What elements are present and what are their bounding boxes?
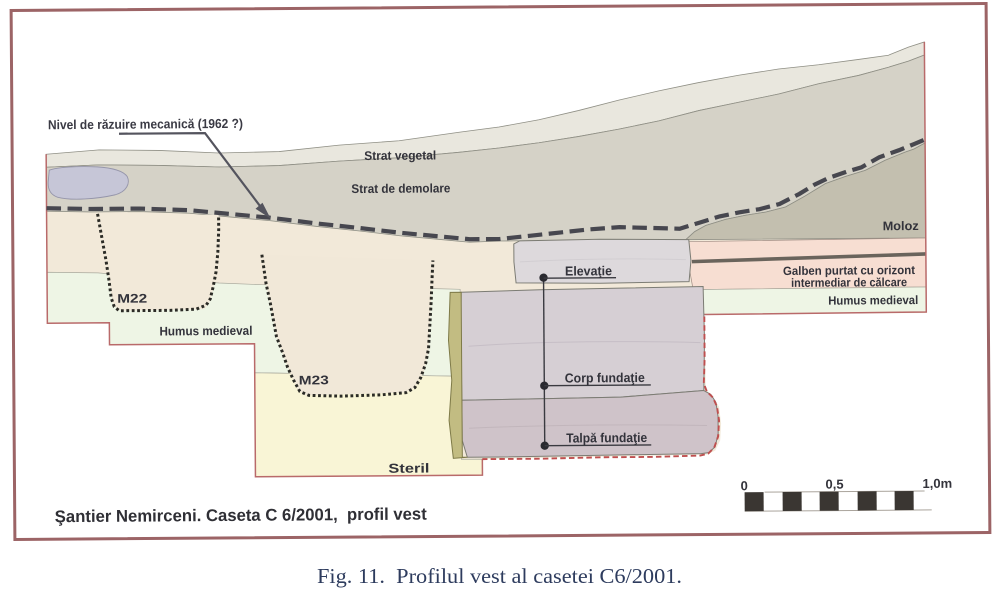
svg-text:Elevaţie: Elevaţie <box>565 263 612 278</box>
svg-text:0: 0 <box>740 478 747 493</box>
svg-text:Strat vegetal: Strat vegetal <box>364 148 436 163</box>
svg-text:Steril: Steril <box>388 461 429 476</box>
svg-text:Moloz: Moloz <box>883 219 919 233</box>
svg-text:M22: M22 <box>117 292 147 306</box>
svg-text:Şantier Nemirceni. Caseta C 6/: Şantier Nemirceni. Caseta C 6/2001, prof… <box>55 505 427 527</box>
svg-text:Strat de demolare: Strat de demolare <box>351 181 450 196</box>
svg-text:intermediar de călcare: intermediar de călcare <box>791 275 907 290</box>
svg-text:Humus medieval: Humus medieval <box>159 324 252 339</box>
svg-text:Humus medieval: Humus medieval <box>828 293 918 308</box>
svg-text:M23: M23 <box>299 373 329 387</box>
svg-text:Talpă fundaţie: Talpă fundaţie <box>566 430 647 446</box>
svg-text:Nivel de răzuire mecanică (196: Nivel de răzuire mecanică (1962 ?) <box>48 116 243 132</box>
svg-text:1,0m: 1,0m <box>922 476 952 491</box>
svg-text:Fig. 11. Profilul vest al cas: Fig. 11. Profilul vest al casetei C6/200… <box>317 564 682 588</box>
svg-text:0,5: 0,5 <box>825 477 843 492</box>
svg-text:Corp fundaţie: Corp fundaţie <box>565 370 645 386</box>
